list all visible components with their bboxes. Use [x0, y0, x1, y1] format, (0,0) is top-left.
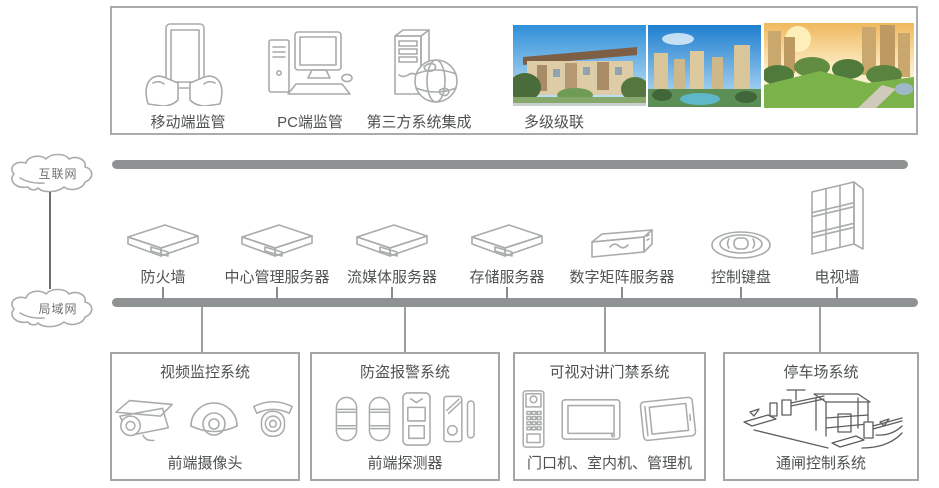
subsystem-title: 防盗报警系统 [312, 361, 498, 382]
cloud-link-line [49, 192, 51, 289]
parking-gate-icon [736, 388, 906, 450]
device-tick [506, 287, 508, 299]
top-item-label: 多级级联 [524, 111, 584, 132]
ptz-camera-icon [250, 395, 296, 443]
subsystem-box-alarm: 防盗报警系统 前端探测器 [310, 352, 500, 481]
internet-cloud-icon: 互联网 [6, 151, 110, 197]
rack-server-icon [125, 221, 201, 261]
pir-detector-icon [401, 391, 432, 447]
bullet-camera-icon [114, 395, 178, 443]
community-photo-2 [648, 25, 761, 107]
top-item-label: 第三方系统集成 [349, 111, 489, 132]
device-tick [162, 287, 164, 299]
desktop-pc-icon [266, 28, 354, 106]
server-globe-icon [383, 28, 459, 106]
rack-server-icon [239, 221, 315, 261]
community-photo-1 [513, 25, 646, 106]
rack-server-icon [354, 221, 430, 261]
control-keyboard-icon [709, 226, 773, 262]
door-station-icon [520, 389, 547, 449]
dome-camera-icon [188, 396, 240, 442]
lan-network-bar [112, 298, 918, 307]
internet-network-bar [112, 160, 908, 169]
device-tick [391, 287, 393, 299]
subsystem-title: 视频监控系统 [112, 361, 298, 382]
device-tick [276, 287, 278, 299]
device-tick [740, 287, 742, 299]
subsystem-caption: 通闸控制系统 [725, 452, 917, 473]
beam-detector-icon [335, 396, 358, 442]
subsystem-box-intercom-access: 可视对讲门禁系统 [513, 352, 706, 481]
tablet-hands-icon [142, 22, 226, 106]
subsystem-title: 可视对讲门禁系统 [515, 361, 704, 382]
rack-server-icon [469, 221, 545, 261]
subsystem-connector [819, 307, 821, 352]
top-item-label: 移动端监管 [118, 111, 258, 132]
device-tick [621, 287, 623, 299]
door-contact-icon [442, 394, 476, 444]
subsystem-title: 停车场系统 [725, 361, 917, 382]
system-architecture-diagram: 移动端监管 PC端监管 [0, 0, 939, 488]
subsystem-connector [404, 307, 406, 352]
subsystem-box-parking: 停车场系统 [723, 352, 919, 481]
tv-wall-icon [807, 178, 867, 262]
beam-detector-icon [368, 396, 391, 442]
internet-cloud-label: 互联网 [6, 165, 110, 182]
subsystem-box-video-surveillance: 视频监控系统 [110, 352, 300, 481]
community-photo-3 [764, 23, 914, 108]
lan-cloud-label: 局域网 [6, 300, 110, 317]
management-station-icon [635, 392, 699, 446]
subsystem-connector [604, 307, 606, 352]
subsystem-connector [201, 307, 203, 352]
matrix-server-icon [586, 226, 658, 262]
device-label-tv-wall: 电视墙 [767, 266, 907, 287]
subsystem-caption: 门口机、室内机、管理机 [515, 452, 704, 473]
indoor-monitor-icon [560, 395, 622, 443]
subsystem-caption: 前端探测器 [312, 452, 498, 473]
device-tick [836, 287, 838, 299]
lan-cloud-icon: 局域网 [6, 286, 110, 332]
subsystem-caption: 前端摄像头 [112, 452, 298, 473]
